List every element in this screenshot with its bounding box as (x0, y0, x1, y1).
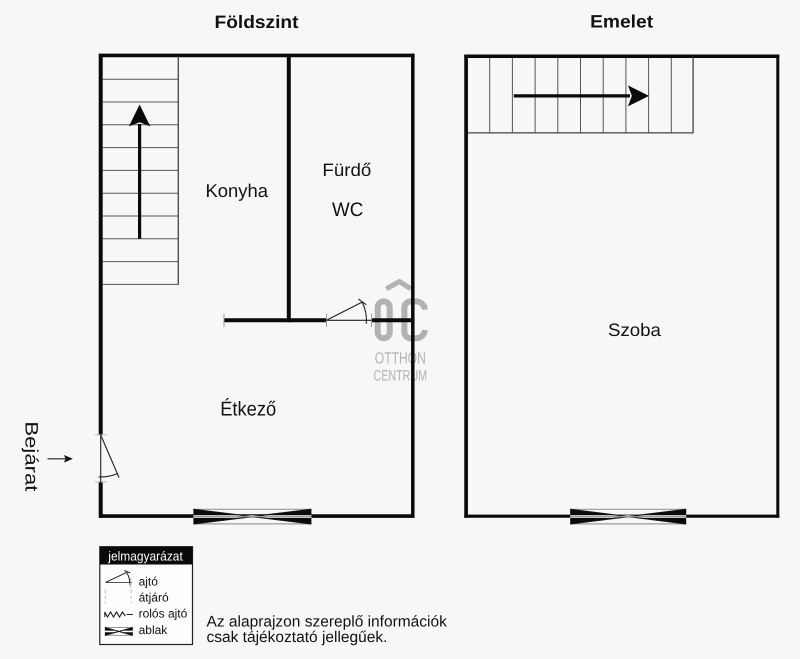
svg-text:Bejárat: Bejárat (22, 421, 42, 491)
svg-text:Étkező: Étkező (220, 397, 276, 420)
svg-text:OTTHON: OTTHON (375, 349, 426, 367)
svg-text:Fürdő: Fürdő (322, 160, 371, 180)
svg-text:ajtó: ajtó (139, 575, 159, 589)
svg-text:csak tájékoztató jellegűek.: csak tájékoztató jellegűek. (207, 629, 388, 646)
svg-text:ablak: ablak (139, 623, 169, 637)
svg-text:WC: WC (332, 199, 363, 221)
svg-text:Emelet: Emelet (590, 12, 653, 32)
svg-text:CENTRUM: CENTRUM (374, 367, 428, 384)
svg-text:rolós ajtó: rolós ajtó (139, 607, 188, 621)
svg-text:Konyha: Konyha (206, 180, 269, 201)
svg-text:Földszint: Földszint (215, 12, 299, 32)
svg-text:átjáró: átjáró (139, 590, 169, 604)
svg-text:jelmagyarázat: jelmagyarázat (107, 549, 183, 564)
svg-text:Szoba: Szoba (608, 320, 662, 340)
